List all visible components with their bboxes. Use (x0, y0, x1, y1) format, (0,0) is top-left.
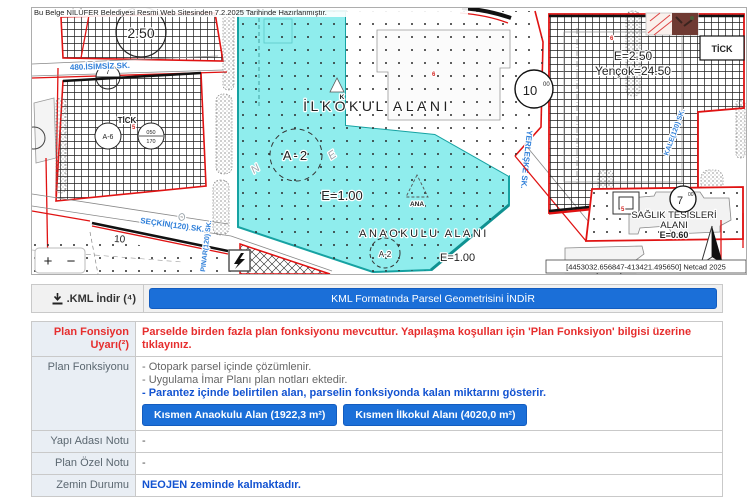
coordinates-text: [4453032.656847-413421.495650] Netcad 20… (566, 263, 726, 272)
label-anaokulu-e: E=1.00 (440, 252, 475, 264)
zoom-out-button[interactable]: − (67, 253, 76, 270)
label-ilkokul-e: E=1.00 (321, 188, 363, 203)
label-right-yencok: Yençok=24.50 (595, 64, 671, 78)
label-circle-250: 2.50 (127, 25, 154, 41)
label-anaokulu: ANAOKULU ALANI (359, 228, 489, 240)
label-anaokulu-zone: A-2 (379, 250, 392, 259)
row-yapi-adasi-notu: Yapı Adası Notu - (32, 431, 722, 453)
kismen-ilkokul-button[interactable]: Kısmen İlkokul Alanı (4020,0 m²) (343, 404, 527, 426)
yapi-adasi-label: Yapı Adası Notu (32, 431, 136, 452)
road-width-7-circle: 7 00 (670, 186, 696, 212)
plan-ozel-label: Plan Özel Notu (32, 453, 136, 474)
zoning-map[interactable]: 2.50 7 480.İSİMSİZ SK. TİCK A-6 050 170 … (31, 7, 747, 275)
plan-fonksiyon-uyari-label: Plan Fonsiyon Uyarı(²) (32, 322, 136, 356)
row-plan-fonksiyon-uyari: Plan Fonsiyon Uyarı(²) Parselde birden f… (32, 322, 722, 357)
label-ana: ANA (410, 201, 424, 208)
label-frac-top: 050 (146, 130, 155, 136)
label-road-10-sup: 00 (543, 82, 550, 88)
label-right-e: E=2.50 (614, 49, 653, 63)
kml-download-button[interactable]: KML Formatında Parsel Geometrisini İNDİR (149, 288, 717, 309)
download-icon (52, 293, 63, 305)
yapi-adasi-value: - (136, 431, 722, 452)
label-tick-right: TİCK (712, 44, 733, 54)
plan-note-2: - Uygulama İmar Planı plan notları ekted… (142, 374, 716, 387)
zemin-durumu-label: Zemin Durumu (32, 475, 136, 496)
row-plan-fonksiyonu: Plan Fonksiyonu - Otopark parsel içinde … (32, 357, 722, 431)
coordinates-box: [4453032.656847-413421.495650] Netcad 20… (546, 260, 746, 273)
row-zemin-durumu: Zemin Durumu NEOJEN zeminde kalmaktadır. (32, 475, 722, 496)
kismen-anaokulu-button[interactable]: Kısmen Anaokulu Alan (1922,3 m²) (142, 404, 337, 426)
label-road-7-sup: 00 (688, 192, 694, 198)
map-block-left: TİCK A-6 050 170 5 (56, 73, 206, 201)
road-width-10-circle: 10 00 (515, 70, 553, 108)
label-road-7: 7 (677, 195, 683, 207)
label-circle-a6: A-6 (103, 134, 114, 141)
label-parcel-10: 10 (114, 234, 126, 246)
plan-function-buttons: Kısmen Anaokulu Alan (1922,3 m²) Kısmen … (142, 404, 716, 426)
label-tick-left: TİCK (118, 116, 137, 125)
map-query-tool-button[interactable] (229, 250, 250, 271)
map-inset-thumbnail[interactable] (646, 13, 698, 35)
document-header-text: Bu Belge NİLÜFER Belediyesi Resmi Web Si… (34, 8, 327, 17)
kml-download-label: .KML İndir (⁴) (32, 285, 144, 312)
label-saglik-e: E=0.60 (660, 230, 689, 240)
document-header: Bu Belge NİLÜFER Belediyesi Resmi Web Si… (32, 8, 468, 17)
kml-label-text: .KML İndir (⁴) (67, 293, 136, 305)
kml-download-row: .KML İndir (⁴) KML Formatında Parsel Geo… (31, 284, 723, 313)
plan-fonksiyon-uyari-value[interactable]: Parselde birden fazla plan fonksiyonu me… (136, 322, 722, 356)
zoom-in-button[interactable]: + (44, 253, 53, 270)
label-frac-bottom: 170 (146, 139, 155, 145)
row-plan-ozel-notu: Plan Özel Notu - (32, 453, 722, 475)
plan-fonksiyonu-label: Plan Fonksiyonu (32, 357, 136, 430)
kml-button-area: KML Formatında Parsel Geometrisini İNDİR (144, 285, 722, 312)
plan-note-highlight: - Parantez içinde belirtilen alan, parse… (142, 387, 716, 400)
label-road-10: 10 (523, 83, 537, 98)
zemin-durumu-value: NEOJEN zeminde kalmaktadır. (136, 475, 722, 496)
label-ilkokul: İLKOKUL ALANI (303, 97, 451, 114)
map-zoom-control[interactable]: + − (35, 248, 85, 273)
parcel-info-table: Plan Fonsiyon Uyarı(²) Parselde birden f… (31, 321, 723, 497)
plan-fonksiyonu-value: - Otopark parsel içinde çözümlenir. - Uy… (136, 357, 722, 430)
plan-note-1: - Otopark parsel içinde çözümlenir. (142, 361, 716, 374)
label-ilkokul-zone: A-2 (283, 148, 309, 163)
plan-ozel-value: - (136, 453, 722, 474)
